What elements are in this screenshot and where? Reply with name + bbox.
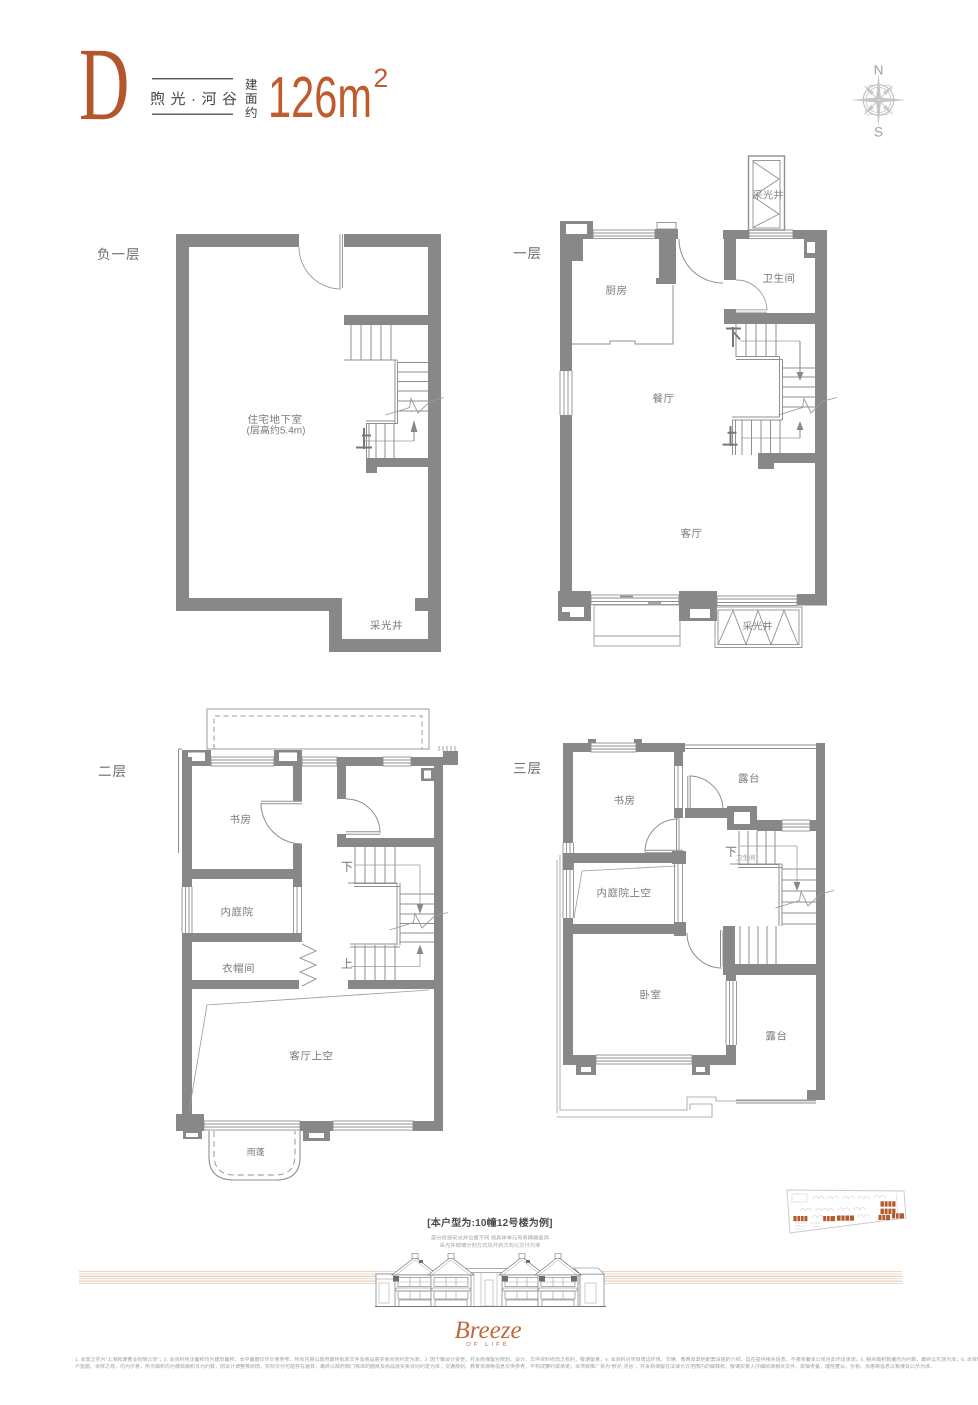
svg-text:露台: 露台 [738,773,760,785]
svg-text:卫生间: 卫生间 [763,273,796,285]
svg-text:建: 建 [245,78,258,92]
svg-text:户型图、本样之观，均为示意，所示面积均为建筑面积且为约数，因: 户型图、本样之观，均为示意，所示面积均为建筑面积且为约数，因设计调整等原因，实际… [75,1363,935,1370]
svg-text:126m: 126m [268,65,372,130]
svg-text:露台: 露台 [766,1031,788,1043]
svg-text:采光井: 采光井 [752,190,784,202]
svg-text:采光井玻璃分割方式及开启方向以交付为准: 采光井玻璃分割方式及开启方向以交付为准 [440,1242,541,1249]
svg-text:下: 下 [341,860,353,874]
svg-text:Breeze: Breeze [454,1317,521,1344]
svg-text:D: D [79,27,129,142]
svg-text:厨房: 厨房 [606,285,628,297]
svg-text:衣帽间: 衣帽间 [222,963,255,975]
svg-text:[本户型为:10幢12号楼为例]: [本户型为:10幢12号楼为例] [427,1217,552,1229]
svg-text:客厅上空: 客厅上空 [290,1051,334,1063]
svg-text:上: 上 [341,957,353,971]
svg-text:采光井: 采光井 [370,620,403,632]
svg-text:部分房源采光井位置不同 视具体单元号有精确差异: 部分房源采光井位置不同 视具体单元号有精确差异 [431,1235,550,1242]
svg-text:面: 面 [245,92,258,106]
svg-text:卧室: 卧室 [640,990,662,1002]
svg-text:餐厅: 餐厅 [653,393,675,405]
svg-text:内庭院: 内庭院 [221,907,254,919]
svg-text:一层: 一层 [513,246,542,261]
svg-text:约: 约 [245,106,258,120]
svg-text:煦光·河谷: 煦光·河谷 [150,91,243,108]
svg-text:书房: 书房 [614,795,636,807]
svg-text:OF LIFE: OF LIFE [466,1341,510,1348]
svg-text:二层: 二层 [98,764,127,779]
svg-text:采光井: 采光井 [743,621,773,633]
svg-text:负一层: 负一层 [97,247,141,262]
svg-text:住宅地下室: 住宅地下室 [248,414,303,426]
svg-text:内庭院上空: 内庭院上空 [597,888,652,900]
svg-text:书房: 书房 [230,814,252,826]
svg-text:2: 2 [374,63,389,93]
svg-text:三层: 三层 [513,761,542,776]
svg-text:客厅: 客厅 [681,528,703,540]
svg-text:(层高约5.4m): (层高约5.4m) [247,425,306,437]
svg-text:雨蓬: 雨蓬 [247,1147,265,1157]
svg-text:1. 本宣之实为“上海和源置业有限公司”；2. 本资料所注面: 1. 本宣之实为“上海和源置业有限公司”；2. 本资料所注面积均为建筑面积，本平… [75,1356,978,1363]
